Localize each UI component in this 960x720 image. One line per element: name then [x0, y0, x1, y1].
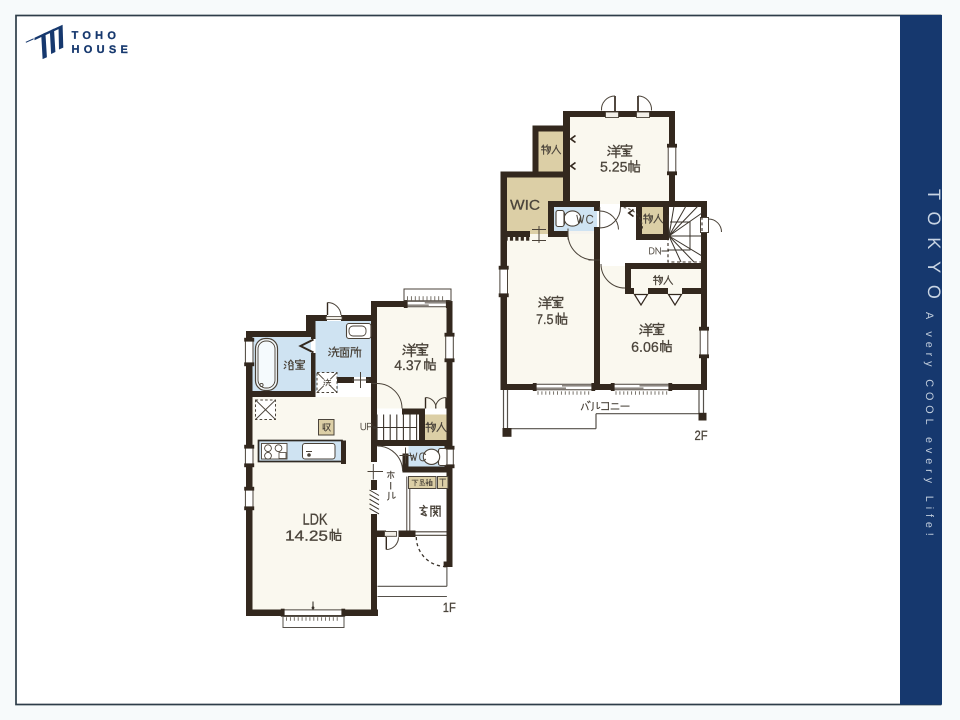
- svg-text:1F: 1F: [443, 600, 456, 615]
- svg-text:7.5: 7.5: [536, 311, 554, 327]
- svg-text:6.06: 6.06: [631, 339, 659, 355]
- svg-text:14.25: 14.25: [285, 529, 328, 545]
- svg-text:HOUSE: HOUSE: [71, 44, 132, 56]
- svg-text:2F: 2F: [694, 428, 707, 443]
- svg-text:LDK: LDK: [302, 512, 327, 529]
- svg-text:5.25: 5.25: [600, 159, 628, 175]
- svg-text:A very COOL every Life!: A very COOL every Life!: [923, 312, 935, 541]
- svg-text:4.37: 4.37: [394, 357, 421, 373]
- svg-text:WIC: WIC: [510, 197, 540, 213]
- svg-text:TOKYO: TOKYO: [924, 189, 944, 311]
- svg-text:TOHO: TOHO: [71, 30, 120, 42]
